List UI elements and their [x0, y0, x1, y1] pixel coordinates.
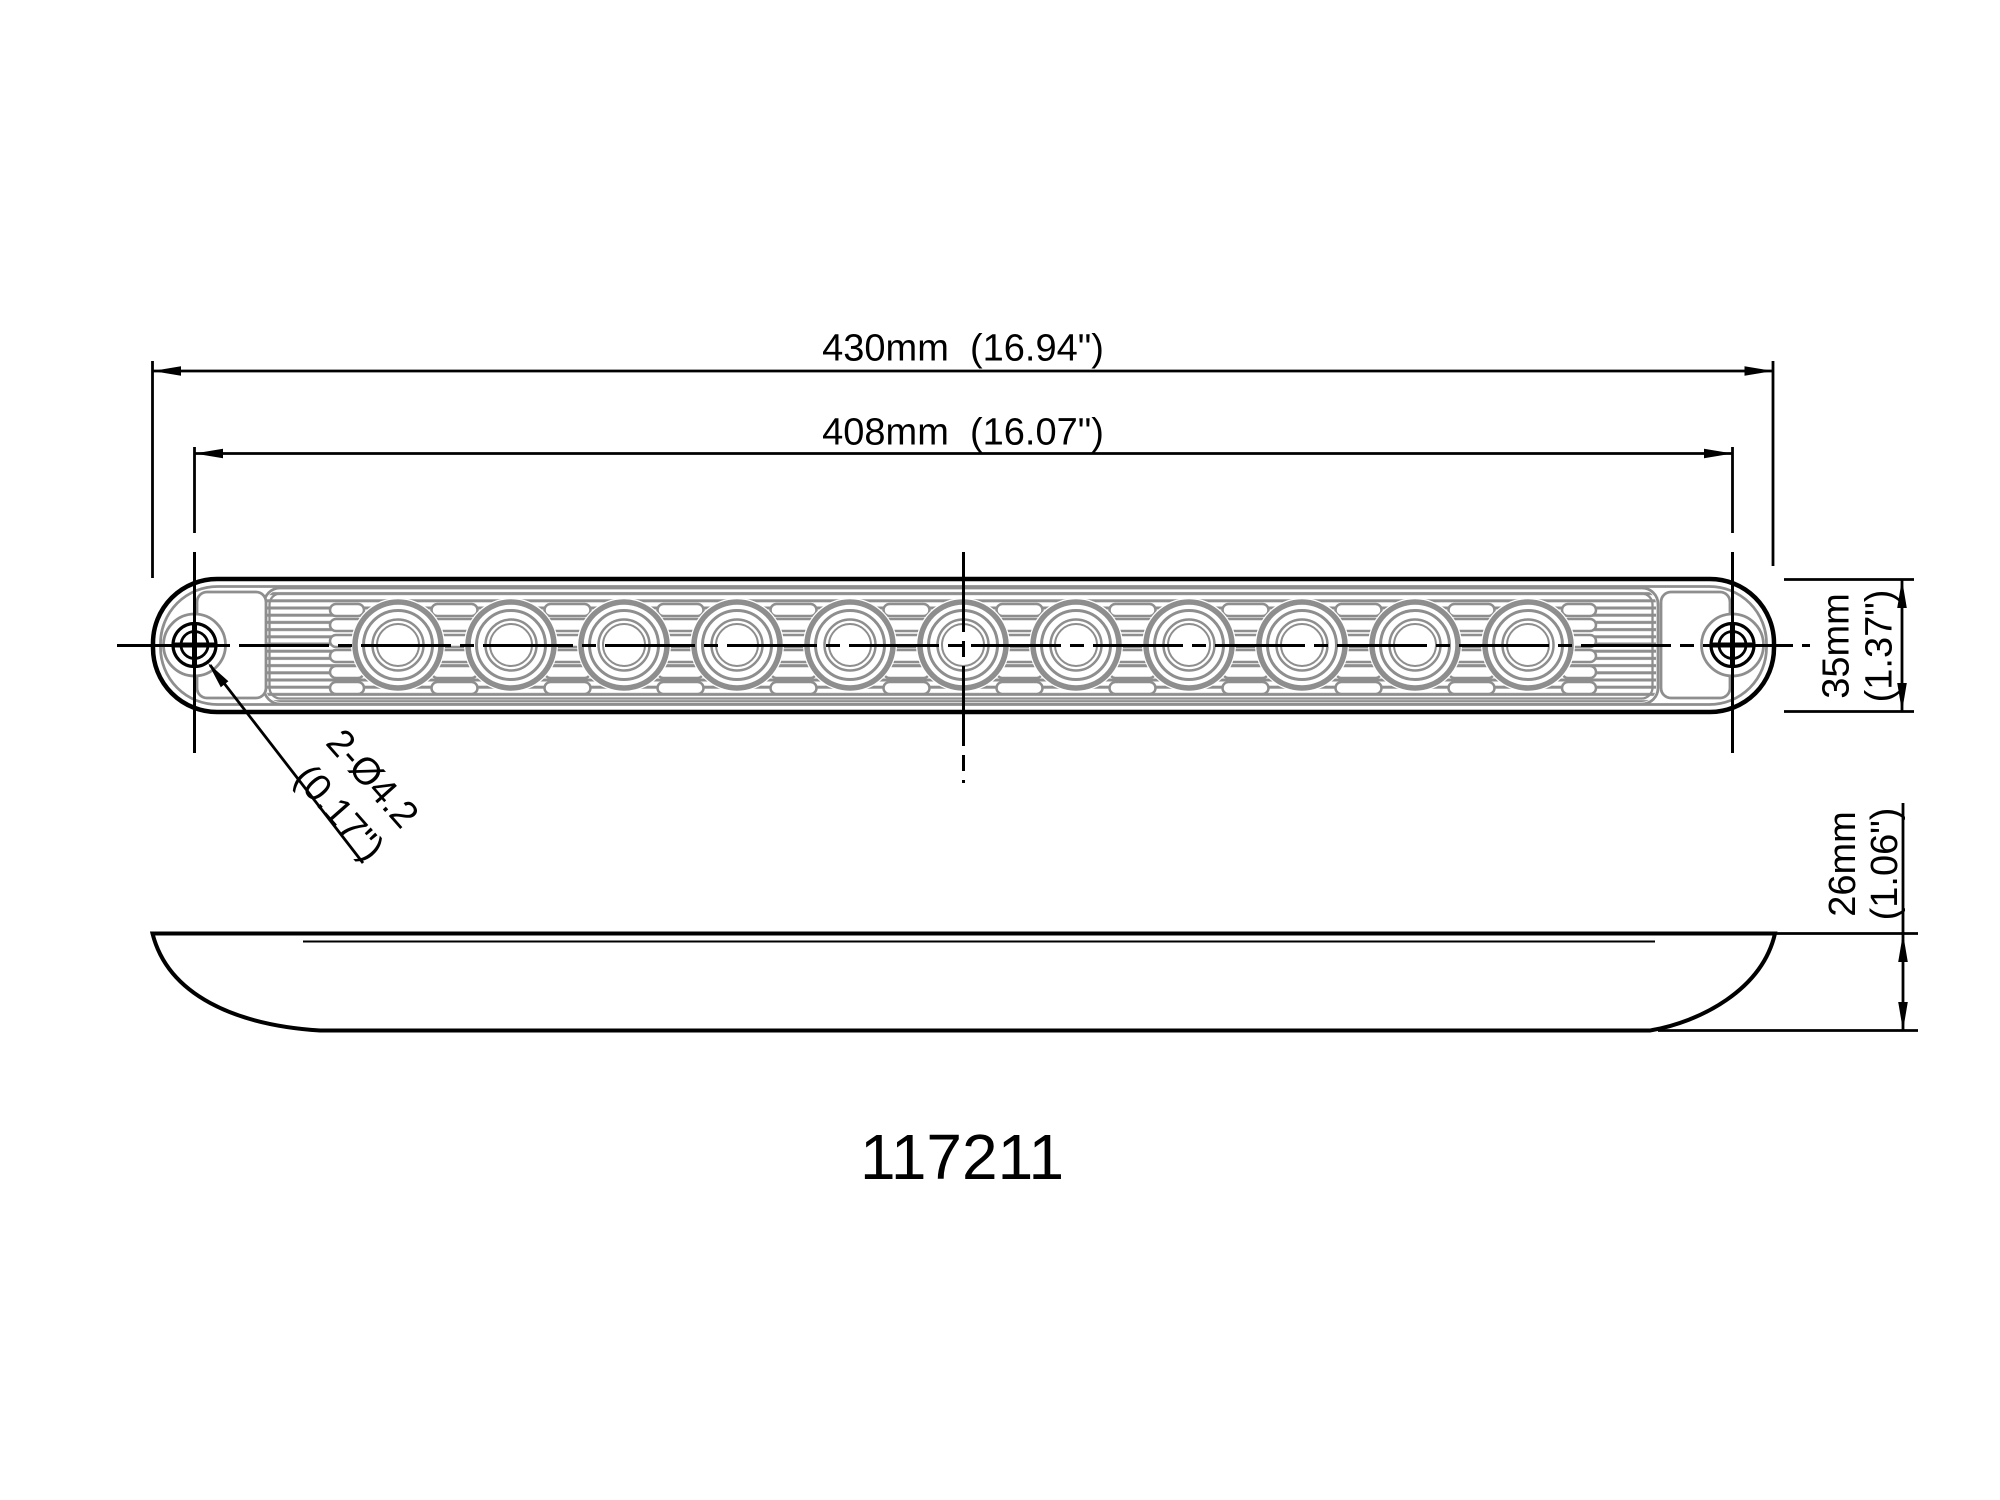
side-view: [153, 934, 1776, 1031]
arrowhead-right-icon: [1745, 366, 1774, 376]
dimension-label-depth-in: (1.06"): [1864, 808, 1906, 921]
dimension-label-overall-length: 430mm (16.94"): [822, 328, 1104, 370]
technical-drawing: 430mm (16.94") 408mm (16.07") 35mm (1.37…: [0, 0, 2000, 1500]
part-number: 117211: [860, 1121, 1064, 1193]
drawing-page: 430mm (16.94") 408mm (16.07") 35mm (1.37…: [0, 0, 2000, 1500]
arrowhead-right-icon: [1704, 449, 1733, 459]
side-profile-outline: [153, 934, 1776, 1031]
arrowhead-left-icon: [153, 366, 182, 376]
dimension-label-width-in: (1.37"): [1859, 590, 1901, 703]
arrowhead-down-icon: [1898, 1002, 1908, 1031]
arrowhead-up-icon: [1898, 934, 1908, 963]
dimension-label-width-mm: 35mm: [1816, 593, 1858, 699]
arrowhead-left-icon: [195, 449, 224, 459]
dimension-mounting-centers: 408mm (16.07"): [195, 412, 1733, 534]
dimension-label-mounting-centers: 408mm (16.07"): [822, 412, 1104, 454]
dimension-label-depth-mm: 26mm: [1822, 811, 1864, 917]
